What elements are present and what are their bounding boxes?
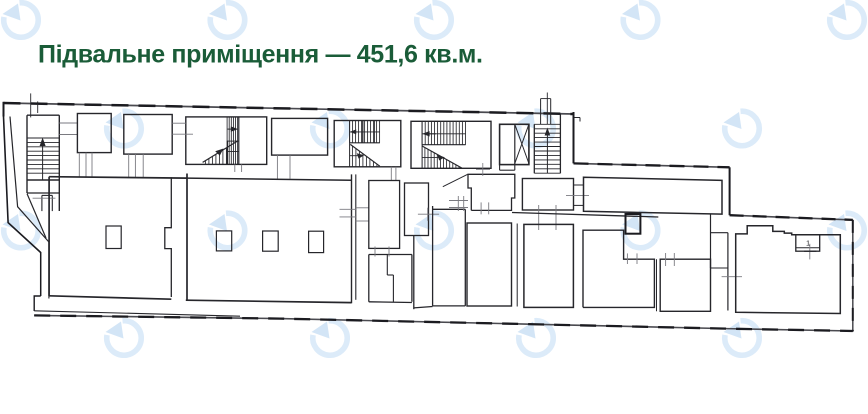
svg-text:Підвальне приміщення — 451,6 к: Підвальне приміщення — 451,6 кв.м. [38,40,483,68]
svg-text:1: 1 [806,239,810,248]
